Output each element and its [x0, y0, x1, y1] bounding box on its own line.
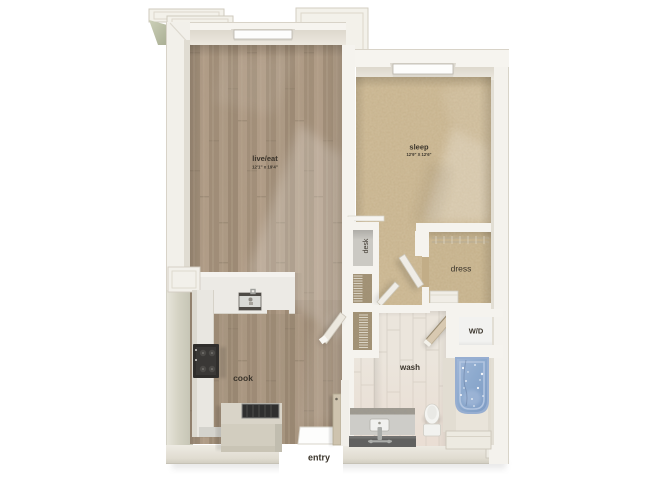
- svg-text:W/D: W/D: [469, 327, 484, 336]
- svg-text:wash: wash: [399, 363, 420, 372]
- svg-text:cook: cook: [233, 373, 253, 383]
- svg-text:12'1" x 19'4": 12'1" x 19'4": [252, 165, 278, 170]
- svg-text:desk: desk: [363, 238, 370, 253]
- svg-text:dress: dress: [451, 264, 472, 274]
- svg-text:live/eat: live/eat: [252, 154, 278, 163]
- svg-text:12'9" X 12'6": 12'9" X 12'6": [406, 152, 431, 157]
- svg-text:entry: entry: [308, 453, 330, 463]
- svg-text:sleep: sleep: [409, 143, 429, 152]
